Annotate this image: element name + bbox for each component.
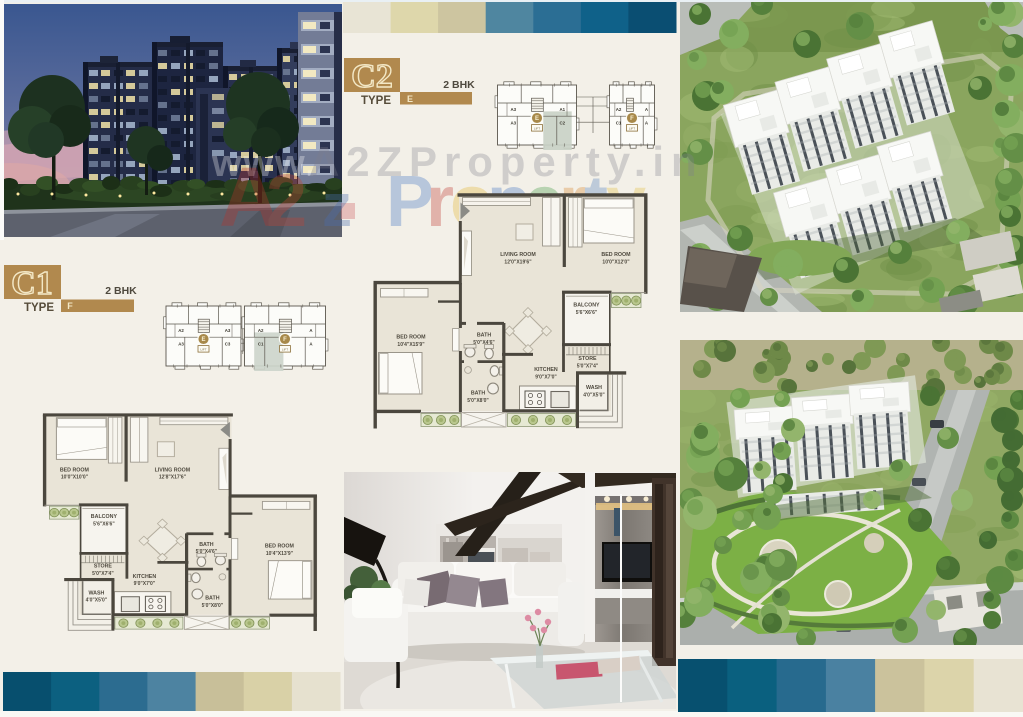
svg-text:5'0"X7'4": 5'0"X7'4"	[577, 363, 599, 369]
svg-text:10'4"X13'9": 10'4"X13'9"	[266, 551, 294, 557]
svg-text:LIVING ROOM: LIVING ROOM	[155, 467, 191, 473]
svg-text:4'0"X5'0": 4'0"X5'0"	[86, 598, 108, 604]
svg-text:A2: A2	[616, 107, 622, 112]
svg-text:C2: C2	[559, 121, 565, 126]
svg-text:LIFT: LIFT	[282, 347, 288, 351]
svg-text:STORE: STORE	[578, 356, 597, 362]
svg-text:STORE: STORE	[94, 564, 113, 570]
svg-text:A3: A3	[510, 107, 516, 112]
svg-text:5'0"X8'0": 5'0"X8'0"	[202, 603, 224, 609]
svg-text:BALCONY: BALCONY	[91, 514, 118, 520]
svg-text:KITCHEN: KITCHEN	[534, 367, 558, 373]
svg-text:A1: A1	[559, 107, 565, 112]
svg-text:BATH: BATH	[199, 542, 213, 548]
svg-text:A3: A3	[178, 342, 184, 347]
svg-text:z: z	[322, 172, 352, 239]
svg-text:9'0"X7'0": 9'0"X7'0"	[535, 374, 557, 380]
svg-text:12'8"X17'6": 12'8"X17'6"	[159, 475, 187, 481]
svg-text:A3: A3	[510, 121, 516, 126]
svg-text:F: F	[283, 337, 287, 343]
svg-text:LIFT: LIFT	[629, 126, 635, 130]
svg-text:A2: A2	[178, 328, 184, 333]
svg-text:5'0"X8'0": 5'0"X8'0"	[467, 398, 489, 404]
svg-text:E: E	[201, 337, 205, 343]
svg-text:BATH: BATH	[471, 391, 485, 397]
svg-text:5'0"X4'6": 5'0"X4'6"	[196, 549, 218, 555]
svg-text:E: E	[407, 94, 413, 104]
svg-text:BALCONY: BALCONY	[573, 303, 600, 309]
svg-text:F: F	[630, 116, 634, 122]
svg-text:BED ROOM: BED ROOM	[60, 467, 90, 473]
svg-text:C2: C2	[351, 58, 393, 95]
svg-text:2 BHK: 2 BHK	[443, 79, 475, 91]
svg-text:BED ROOM: BED ROOM	[396, 335, 426, 341]
svg-text:BED ROOM: BED ROOM	[601, 252, 631, 258]
svg-text:2 BHK: 2 BHK	[105, 285, 137, 297]
svg-text:5'0"X7'4": 5'0"X7'4"	[92, 571, 114, 577]
svg-text:C1: C1	[258, 342, 264, 347]
svg-text:LIFT: LIFT	[534, 126, 540, 130]
svg-text:4'0"X5'0": 4'0"X5'0"	[583, 392, 605, 398]
svg-text:LIVING ROOM: LIVING ROOM	[500, 252, 536, 258]
svg-text:WASH: WASH	[586, 385, 602, 391]
svg-text:E: E	[535, 116, 539, 122]
svg-text:WASH: WASH	[88, 590, 104, 596]
svg-text:C3: C3	[225, 342, 231, 347]
svg-text:12'0"X19'6": 12'0"X19'6"	[504, 259, 532, 265]
svg-text:C1: C1	[616, 121, 622, 126]
svg-text:5'6"X6'6": 5'6"X6'6"	[576, 310, 598, 316]
svg-text:5'6"X6'6": 5'6"X6'6"	[93, 521, 115, 527]
svg-text:10'0"X12'0": 10'0"X12'0"	[602, 259, 630, 265]
svg-text:10'4"X15'9": 10'4"X15'9"	[397, 342, 425, 348]
svg-text:TYPE: TYPE	[361, 95, 391, 107]
svg-text:LIFT: LIFT	[200, 347, 206, 351]
svg-text:BATH: BATH	[205, 596, 219, 602]
svg-text:A2: A2	[258, 328, 264, 333]
svg-text:F: F	[67, 301, 73, 311]
svg-text:2: 2	[266, 159, 307, 242]
svg-text:5'0"X4'6": 5'0"X4'6"	[473, 340, 495, 346]
svg-text:BED ROOM: BED ROOM	[265, 544, 295, 550]
svg-text:KITCHEN: KITCHEN	[133, 574, 157, 580]
svg-text:9'0"X7'0": 9'0"X7'0"	[134, 581, 156, 587]
svg-text:A3: A3	[225, 328, 231, 333]
svg-text:10'0"X10'0": 10'0"X10'0"	[61, 475, 89, 481]
svg-text:TYPE: TYPE	[24, 302, 54, 314]
svg-text:C1: C1	[11, 265, 53, 302]
svg-text:BATH: BATH	[477, 333, 491, 339]
